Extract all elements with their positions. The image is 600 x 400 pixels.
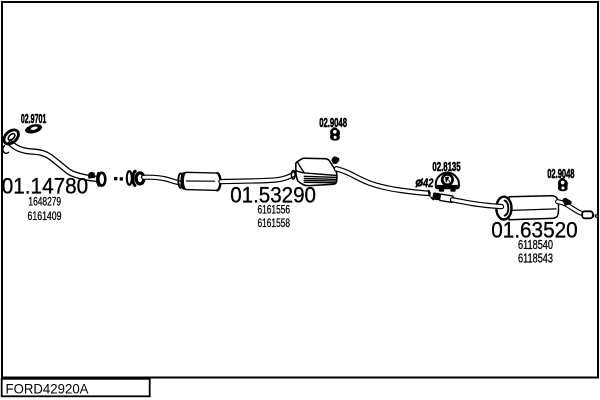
svg-text:02.9048: 02.9048 (319, 115, 347, 130)
svg-text:6161556: 6161556 (258, 203, 291, 217)
svg-text:6118540: 6118540 (518, 238, 553, 252)
svg-text:6118543: 6118543 (518, 252, 553, 266)
svg-text:02.9048: 02.9048 (547, 166, 574, 181)
svg-text:42: 42 (422, 176, 434, 190)
svg-text:02.8135: 02.8135 (432, 159, 460, 174)
svg-text:FORD42920A: FORD42920A (6, 380, 90, 396)
svg-text:6161558: 6161558 (258, 216, 291, 230)
svg-text:6161409: 6161409 (28, 209, 62, 223)
svg-text:1648279: 1648279 (28, 195, 61, 209)
svg-text:02.9701: 02.9701 (21, 111, 46, 126)
